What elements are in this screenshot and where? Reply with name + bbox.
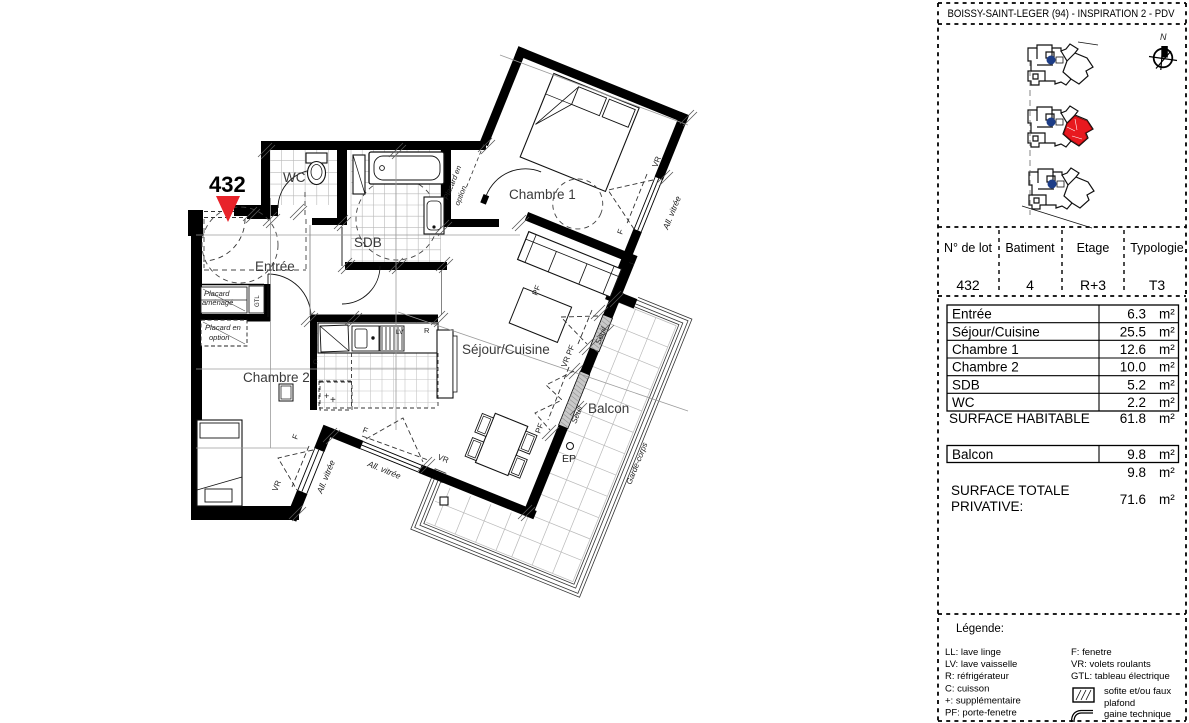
svg-text:71.6: 71.6: [1120, 492, 1146, 507]
svg-text:m²: m²: [1159, 492, 1175, 507]
svg-text:R+3: R+3: [1080, 277, 1106, 293]
svg-text:Balcon: Balcon: [952, 447, 993, 462]
svg-text:Chambre 1: Chambre 1: [952, 342, 1019, 357]
svg-text:432: 432: [209, 172, 246, 197]
svg-text:25.5: 25.5: [1120, 324, 1146, 339]
svg-text:12.6: 12.6: [1120, 342, 1146, 357]
svg-text:9.8: 9.8: [1127, 447, 1146, 462]
svg-text:option: option: [209, 333, 229, 342]
svg-text:T3: T3: [1149, 277, 1166, 293]
svg-text:2.2: 2.2: [1127, 395, 1146, 410]
svg-text:WC: WC: [283, 170, 306, 185]
svg-text:+: +: [324, 391, 329, 401]
svg-text:LV: lave vaisselle: LV: lave vaisselle: [945, 659, 1017, 670]
svg-text:Séjour/Cuisine: Séjour/Cuisine: [952, 324, 1040, 339]
svg-text:Etage: Etage: [1077, 241, 1110, 255]
svg-text:SDB: SDB: [354, 235, 382, 250]
svg-text:Chambre 2: Chambre 2: [243, 370, 310, 385]
svg-text:61.8: 61.8: [1120, 411, 1146, 426]
svg-text:10.0: 10.0: [1120, 360, 1146, 375]
svg-text:N° de lot: N° de lot: [944, 241, 993, 255]
svg-text:WC: WC: [952, 395, 975, 410]
svg-text:4: 4: [1026, 277, 1034, 293]
svg-text:Séjour/Cuisine: Séjour/Cuisine: [462, 342, 550, 357]
svg-text:m²: m²: [1159, 447, 1175, 462]
svg-text:C: C: [313, 359, 318, 366]
svg-text:aménagé: aménagé: [202, 298, 233, 307]
svg-text:m²: m²: [1159, 465, 1175, 480]
svg-text:Légende:: Légende:: [956, 623, 1004, 635]
svg-text:plafond: plafond: [1104, 698, 1135, 709]
svg-text:m²: m²: [1159, 395, 1175, 410]
svg-text:m²: m²: [1159, 324, 1175, 339]
svg-text:SURFACE HABITABLE: SURFACE HABITABLE: [949, 411, 1090, 426]
svg-text:Placard: Placard: [204, 289, 230, 298]
svg-text:m²: m²: [1159, 411, 1175, 426]
svg-text:Typologie: Typologie: [1130, 241, 1184, 255]
svg-text:SURFACE TOTALE: SURFACE TOTALE: [951, 483, 1070, 498]
svg-text:N: N: [1160, 32, 1167, 42]
svg-text:BOISSY-SAINT-LEGER (94) - INSP: BOISSY-SAINT-LEGER (94) - INSPIRATION 2 …: [948, 8, 1176, 20]
svg-text:PF: porte-fenetre: PF: porte-fenetre: [945, 708, 1017, 719]
svg-text:EP: EP: [562, 453, 576, 465]
svg-text:sofite et/ou faux: sofite et/ou faux: [1104, 686, 1171, 697]
svg-text:Batiment: Batiment: [1005, 241, 1055, 255]
svg-text:9.8: 9.8: [1127, 465, 1146, 480]
svg-text:PRIVATIVE:: PRIVATIVE:: [951, 499, 1023, 514]
svg-text:C: cuisson: C: cuisson: [945, 683, 989, 694]
svg-text:m²: m²: [1159, 307, 1175, 322]
svg-text:Entrée: Entrée: [255, 259, 295, 274]
svg-text:LV: LV: [396, 329, 404, 336]
svg-text:R: R: [424, 326, 430, 335]
svg-text:Placard en: Placard en: [205, 323, 241, 332]
svg-text:GTL: GTL: [255, 295, 261, 307]
svg-text:GTL: tableau électrique: GTL: tableau électrique: [1071, 671, 1170, 682]
svg-text:m²: m²: [1159, 342, 1175, 357]
svg-text:+: supplémentaire: +: supplémentaire: [945, 695, 1021, 706]
svg-text:VR: volets roulants: VR: volets roulants: [1071, 659, 1151, 670]
svg-text:Chambre 2: Chambre 2: [952, 360, 1019, 375]
svg-text:Balcon: Balcon: [588, 401, 629, 416]
svg-text:6.3: 6.3: [1127, 307, 1146, 322]
svg-text:R: réfrigérateur: R: réfrigérateur: [945, 671, 1009, 682]
svg-text:Chambre 1: Chambre 1: [509, 187, 576, 202]
svg-text:432: 432: [956, 277, 980, 293]
svg-text:F: fenetre: F: fenetre: [1071, 647, 1112, 658]
svg-text:m²: m²: [1159, 360, 1175, 375]
svg-text:m²: m²: [1159, 377, 1175, 392]
svg-text:Entrée: Entrée: [952, 307, 992, 322]
svg-text:SDB: SDB: [952, 377, 980, 392]
svg-text:gaine technique: gaine technique: [1104, 709, 1171, 720]
svg-text:+: +: [330, 395, 336, 406]
svg-text:LL: lave linge: LL: lave linge: [945, 647, 1001, 658]
svg-text:5.2: 5.2: [1127, 377, 1146, 392]
